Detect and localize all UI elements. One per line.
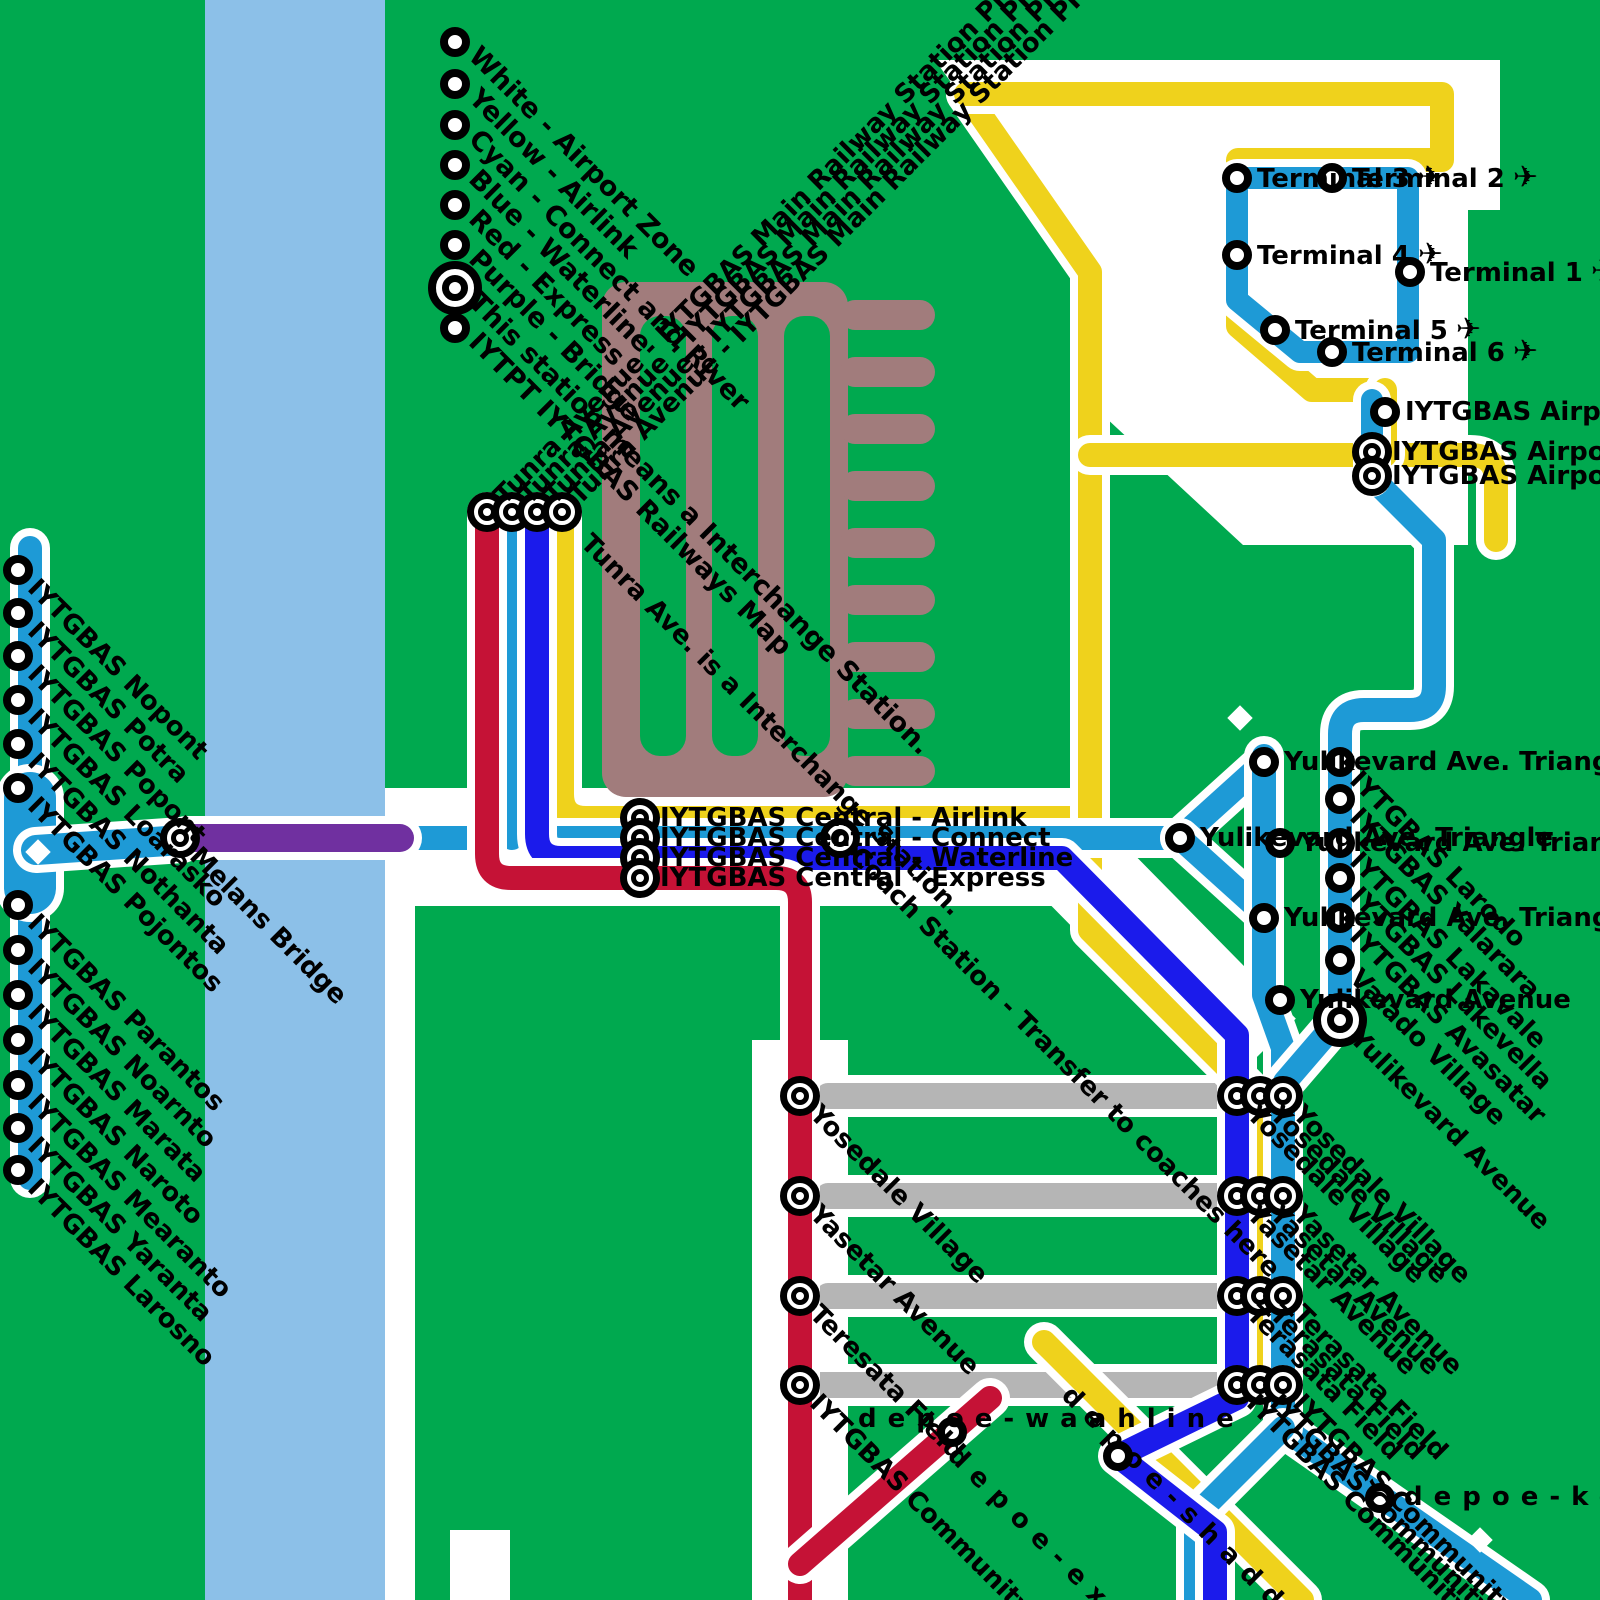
station-label: Terminal 2✈ (1352, 163, 1538, 194)
station-label: Yulikevard Ave. Triangle (1284, 747, 1600, 777)
map-text-depoe-konnekt: depoe-konnekt (1404, 1482, 1600, 1512)
station-label: Terminal 4✈ (1257, 240, 1443, 271)
station-label: IYTGBAS Airport East (1392, 461, 1600, 491)
station-label: Yosedale Village (803, 1099, 993, 1289)
station-label: Terminal 6✈ (1352, 337, 1538, 368)
plane-icon: ✈ (1513, 160, 1538, 195)
plane-icon: ✈ (1591, 254, 1600, 289)
station-label: Yasetar Avenue (803, 1199, 985, 1381)
station-label: IYTGBAS Airport (1405, 397, 1600, 427)
transit-map: Tunra Avenue - IYTGBAS Main Railway Stat… (0, 0, 1600, 1600)
station-label: Terminal 1✈ (1430, 257, 1600, 288)
plane-icon: ✈ (1513, 334, 1538, 369)
labels-layer: Tunra Avenue - IYTGBAS Main Railway Stat… (0, 0, 1600, 1600)
map-text-depoe-waahline: depoe-waahline (858, 1404, 1245, 1434)
